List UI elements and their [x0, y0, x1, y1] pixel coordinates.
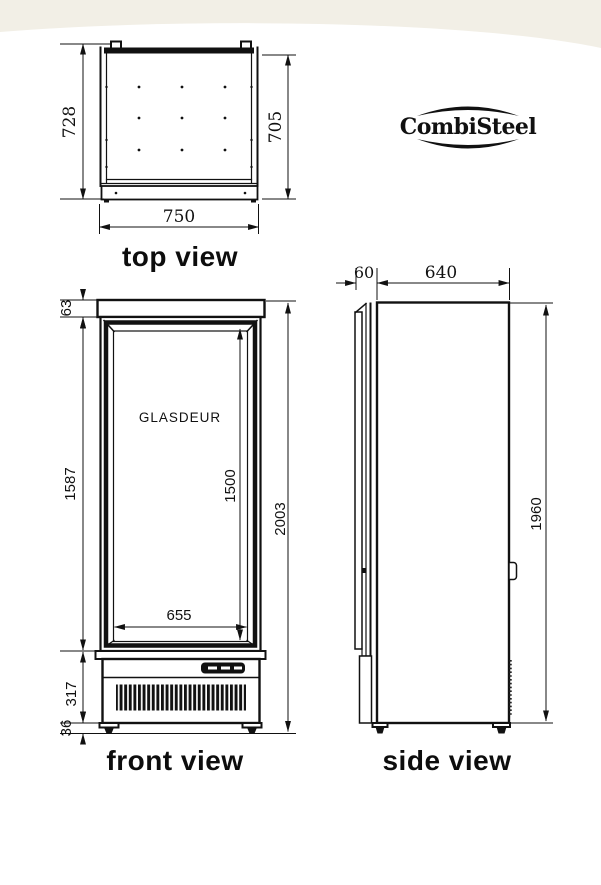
- top-frame-dim-value: 63: [58, 300, 75, 317]
- front-view: GLASDEUR: [58, 291, 296, 776]
- front-foot-left: [100, 723, 119, 734]
- side-view-cabinet-outline: [355, 303, 517, 734]
- side-body: [377, 303, 509, 724]
- outer-depth-dim-value: 728: [60, 106, 80, 138]
- top-cap: [98, 300, 265, 317]
- width-dim-value: 750: [163, 207, 195, 227]
- glass-width-dim-value: 655: [166, 607, 191, 624]
- back-strip: [102, 186, 258, 200]
- top-view-label: top view: [122, 241, 238, 272]
- door-depth-dim-value: 60: [354, 263, 374, 282]
- hinge-left: [111, 42, 121, 49]
- door-front-slab: [355, 312, 362, 649]
- top-view-dimensions: 728 705 750: [60, 44, 296, 234]
- logo-text: CombiSteel: [400, 114, 537, 140]
- door-top-chamfer: [356, 304, 367, 313]
- front-foot-right: [243, 723, 262, 734]
- combisteel-logo: CombiSteel: [400, 107, 537, 149]
- side-foot-left: [373, 723, 388, 734]
- door-handle-mark: [362, 568, 366, 573]
- door-height-dim-value: 1587: [62, 467, 79, 500]
- logo-lower-arc-icon: [417, 139, 519, 149]
- side-view: 60 640 1960 side view: [336, 263, 553, 776]
- strip-foot-mark-left: [104, 200, 109, 203]
- drawing-sheet: CombiSteel: [0, 0, 601, 885]
- glass-height-dim-value: 1500: [222, 469, 239, 502]
- top-view-cabinet-outline: [101, 42, 258, 203]
- ventilation-grille: [116, 685, 246, 711]
- shelf-peg-dots: [105, 86, 252, 195]
- side-view-label: side view: [382, 745, 511, 776]
- control-panel-buttons: [208, 667, 242, 670]
- top-front-bar: [104, 48, 254, 54]
- side-base-panel: [360, 656, 372, 723]
- hinge-right: [241, 42, 251, 49]
- base-top-band: [96, 651, 266, 659]
- technical-drawing: CombiSteel: [0, 0, 601, 885]
- top-view: 728 705 750 top view: [60, 42, 296, 273]
- base-height-dim-value: 317: [63, 681, 80, 706]
- glass-door-label: GLASDEUR: [139, 410, 221, 425]
- front-view-label: front view: [106, 745, 243, 776]
- rear-bracket: [509, 563, 517, 580]
- side-foot-right: [493, 723, 510, 734]
- body-height-dim-value: 1960: [528, 497, 545, 530]
- inner-depth-dim-value: 705: [266, 111, 286, 143]
- feet-height-dim-value: 36: [58, 720, 75, 737]
- body-depth-dim-value: 640: [425, 263, 457, 283]
- header-wave-band: [0, 0, 601, 48]
- strip-foot-mark-right: [251, 200, 256, 203]
- total-height-dim-value: 2003: [272, 502, 289, 535]
